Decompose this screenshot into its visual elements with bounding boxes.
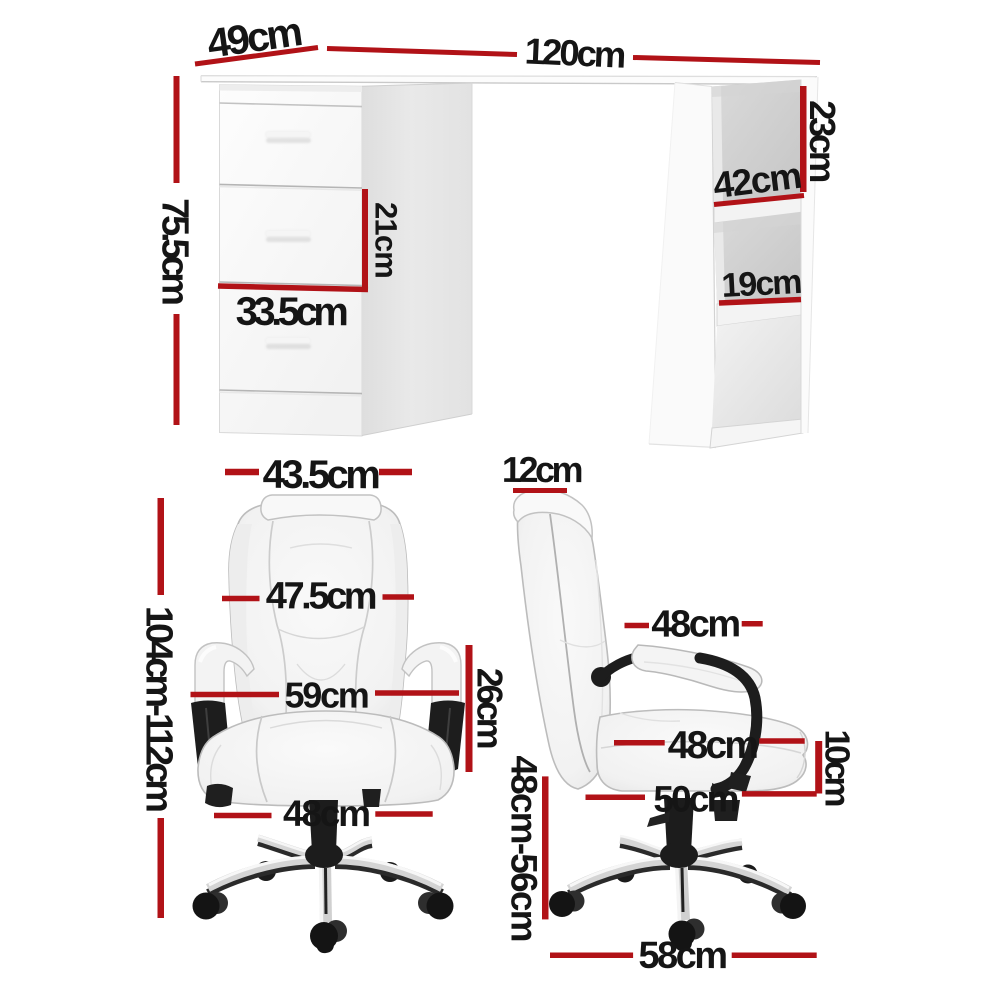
svg-text:21cm: 21cm [369,202,404,278]
svg-text:47.5cm: 47.5cm [266,575,376,617]
svg-text:49cm: 49cm [204,8,303,67]
svg-text:48cm: 48cm [668,724,758,767]
svg-text:33.5cm: 33.5cm [236,290,348,334]
svg-text:58cm: 58cm [638,935,726,977]
svg-text:26cm: 26cm [470,668,511,748]
svg-text:120cm: 120cm [524,30,626,75]
svg-text:48cm: 48cm [283,793,369,834]
svg-text:23cm: 23cm [802,100,843,182]
svg-text:104cm-112cm: 104cm-112cm [138,606,180,811]
svg-text:59cm: 59cm [284,674,367,715]
svg-text:10cm: 10cm [818,729,857,805]
svg-text:48cm-56cm: 48cm-56cm [503,755,544,940]
svg-text:50cm: 50cm [653,778,737,819]
svg-text:43.5cm: 43.5cm [263,453,380,497]
svg-text:48cm: 48cm [651,603,739,645]
svg-text:12cm: 12cm [502,449,582,490]
svg-text:19cm: 19cm [721,263,803,305]
svg-text:75.5cm: 75.5cm [154,198,196,304]
